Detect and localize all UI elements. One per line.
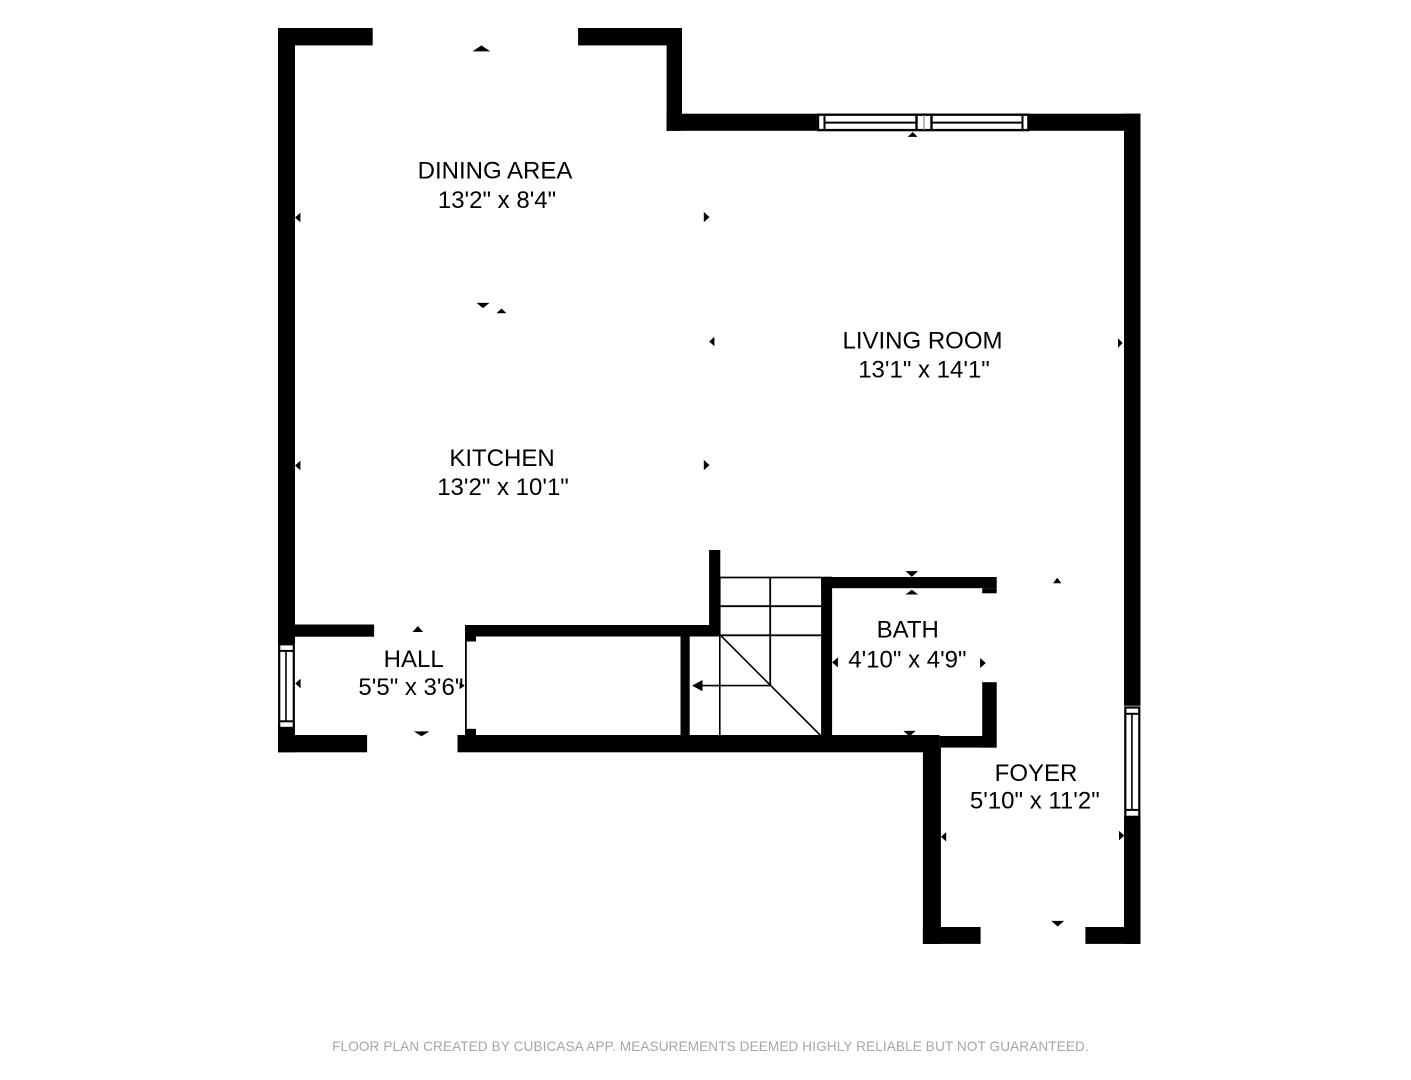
svg-text:FOYER: FOYER <box>995 760 1078 787</box>
svg-text:13'2" x 10'1": 13'2" x 10'1" <box>437 474 569 501</box>
svg-text:13'2" x 8'4": 13'2" x 8'4" <box>438 187 556 214</box>
svg-text:5'10" x 11'2": 5'10" x 11'2" <box>970 788 1100 815</box>
svg-text:HALL: HALL <box>384 646 444 673</box>
svg-text:BATH: BATH <box>877 617 939 644</box>
svg-text:LIVING ROOM: LIVING ROOM <box>842 328 1002 355</box>
svg-text:4'10" x 4'9": 4'10" x 4'9" <box>848 647 966 674</box>
svg-text:13'1" x 14'1": 13'1" x 14'1" <box>858 357 990 384</box>
svg-text:KITCHEN: KITCHEN <box>449 445 554 472</box>
svg-text:5'5" x 3'6": 5'5" x 3'6" <box>358 674 463 701</box>
svg-text:FLOOR PLAN CREATED BY CUBICASA: FLOOR PLAN CREATED BY CUBICASA APP. MEAS… <box>332 1039 1089 1054</box>
svg-text:DINING AREA: DINING AREA <box>418 158 573 185</box>
